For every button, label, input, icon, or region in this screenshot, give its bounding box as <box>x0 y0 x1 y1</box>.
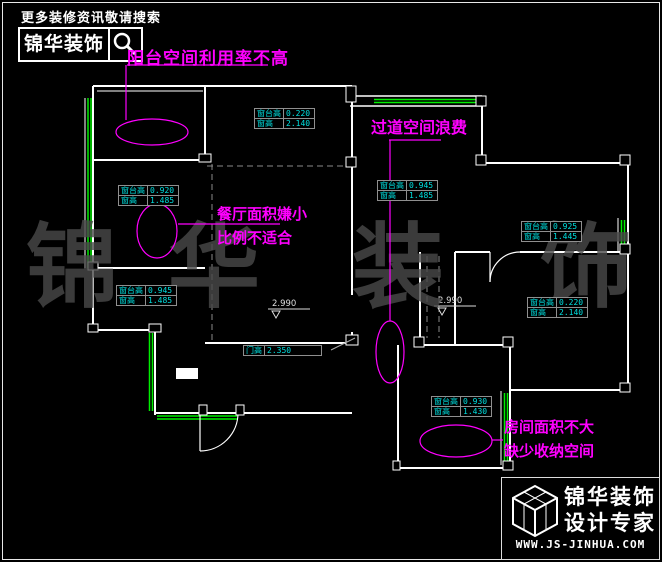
dim-value: 0.920 <box>148 186 179 196</box>
dim-label: 窗高 <box>432 407 461 417</box>
dim-label: 窗高 <box>528 308 557 318</box>
dim-value: 2.140 <box>557 308 588 318</box>
footer-brand-line1: 锦华装饰 <box>564 484 656 510</box>
dim-label: 窗台高 <box>119 186 148 196</box>
footer-url: WWW.JS-JINHUA.COM <box>502 538 659 551</box>
dim-label: 窗台高 <box>432 397 461 407</box>
window-table-bottom-right: 窗台高0.930 窗高1.430 <box>431 396 492 417</box>
dim-value: 0.220 <box>284 109 315 119</box>
dim-value: 1.445 <box>551 232 582 242</box>
window-table-left-lower: 窗台高0.945 窗高1.485 <box>116 285 177 306</box>
annotation-corridor: 过道空间浪费 <box>371 114 467 138</box>
dim-label: 门高 <box>244 346 265 356</box>
dim-value: 1.430 <box>461 407 492 417</box>
annotation-bedroom-line2: 缺少收纳空间 <box>504 440 594 461</box>
window-table-living-top: 窗台高0.220 窗高2.140 <box>254 108 315 129</box>
dim-value: 0.945 <box>146 286 177 296</box>
dim-label: 窗台高 <box>528 298 557 308</box>
dim-value: 1.485 <box>407 191 438 201</box>
dim-value: 0.930 <box>461 397 492 407</box>
dim-label: 窗台高 <box>378 181 407 191</box>
cad-floorplan-screenshot: 2.990 2.990 锦 华 装 饰 更多装修资讯敬请搜索 锦华装饰 <box>0 0 662 562</box>
dim-value: 1.485 <box>148 196 179 206</box>
window-table-right-upper: 窗台高0.925 窗高1.445 <box>521 221 582 242</box>
window-table-dining-left: 窗台高0.920 窗高1.485 <box>118 185 179 206</box>
annotation-dining-line1: 餐厅面积嫌小 <box>217 203 307 224</box>
dim-value: 1.485 <box>146 296 177 306</box>
dim-label: 窗台高 <box>522 222 551 232</box>
dim-value: 2.350 <box>265 346 322 356</box>
dim-label: 窗高 <box>255 119 284 129</box>
dim-label: 窗高 <box>117 296 146 306</box>
dim-value: 0.220 <box>557 298 588 308</box>
window-table-right-lower: 窗台高0.220 窗高2.140 <box>527 297 588 318</box>
dim-value: 0.925 <box>551 222 582 232</box>
dim-label: 窗台高 <box>117 286 146 296</box>
annotation-balcony: 阳台空间利用率不高 <box>127 44 289 69</box>
dim-value: 0.945 <box>407 181 438 191</box>
dim-label: 窗高 <box>119 196 148 206</box>
dim-label: 窗高 <box>522 232 551 242</box>
window-table-corridor: 窗台高0.945 窗高1.485 <box>377 180 438 201</box>
dim-label: 窗台高 <box>255 109 284 119</box>
cube-logo-icon <box>509 483 561 539</box>
dim-value: 2.140 <box>284 119 315 129</box>
footer-logo-block: 锦华装饰 设计专家 WWW.JS-JINHUA.COM <box>501 477 660 560</box>
annotation-dining-line2: 比例不适合 <box>217 227 292 248</box>
footer-brand-line2: 设计专家 <box>564 510 656 536</box>
door-height-table: 门高2.350 <box>243 345 322 356</box>
dim-label: 窗高 <box>378 191 407 201</box>
annotation-bedroom-line1: 房间面积不大 <box>504 416 594 437</box>
